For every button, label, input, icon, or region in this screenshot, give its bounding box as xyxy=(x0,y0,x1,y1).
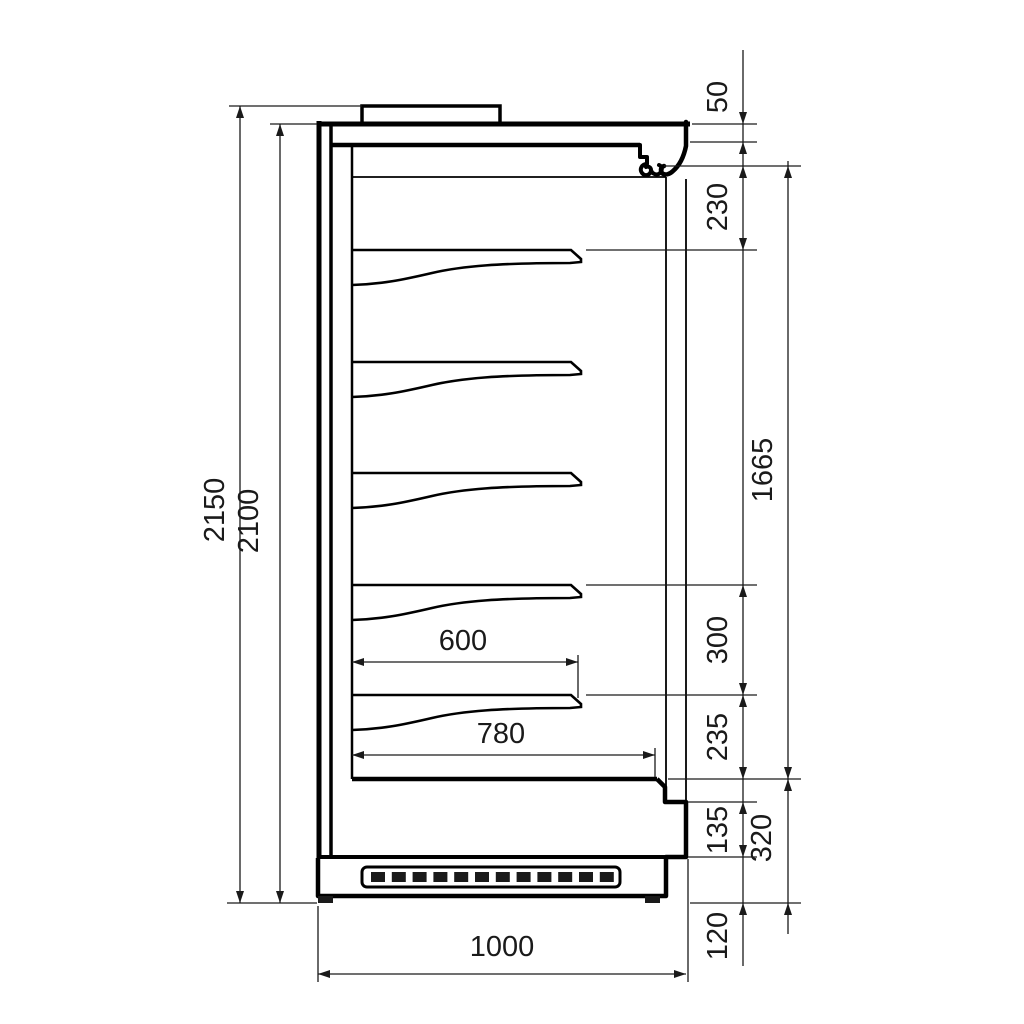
dim-label-shelf-to-deck: 235 xyxy=(702,713,734,761)
grille-slats xyxy=(371,872,614,882)
dim-label-overall-depth: 1000 xyxy=(470,931,535,963)
dim-label-deck-to-floor: 320 xyxy=(746,814,778,862)
shelf-profile-4 xyxy=(352,585,581,620)
shelf-profile-1 xyxy=(352,250,581,285)
shelf-profile-3 xyxy=(352,473,581,508)
cabinet-section-drawing: 2150 2100 50 230 1665 300 235 135 320 12… xyxy=(0,0,1024,1024)
dimension-labels: 2150 2100 50 230 1665 300 235 135 320 12… xyxy=(199,81,779,963)
dim-label-top-unit: 50 xyxy=(702,81,734,113)
technical-drawing-page: 2150 2100 50 230 1665 300 235 135 320 12… xyxy=(0,0,1024,1024)
foot-right xyxy=(645,896,660,903)
dim-label-cabinet-height: 2100 xyxy=(233,489,265,554)
shelf-profile-5 xyxy=(352,695,581,730)
cabinet-structure xyxy=(317,106,690,903)
ventilation-grille xyxy=(362,867,620,887)
canopy-molding xyxy=(640,145,662,175)
dim-label-front-panel: 135 xyxy=(702,806,734,854)
top-unit-box xyxy=(362,106,500,124)
shelves xyxy=(352,250,581,730)
dim-label-overall-height: 2150 xyxy=(199,478,231,543)
dim-label-canopy-to-shelf: 230 xyxy=(702,183,734,231)
dim-label-deck-depth: 780 xyxy=(477,718,525,750)
dim-label-opening-height: 1665 xyxy=(747,438,779,503)
dim-label-shelf-gap: 300 xyxy=(702,616,734,664)
dim-label-plinth-height: 120 xyxy=(702,912,734,960)
dim-label-shelf-depth: 600 xyxy=(439,625,487,657)
shelf-profile-2 xyxy=(352,362,581,397)
foot-left xyxy=(318,896,333,903)
